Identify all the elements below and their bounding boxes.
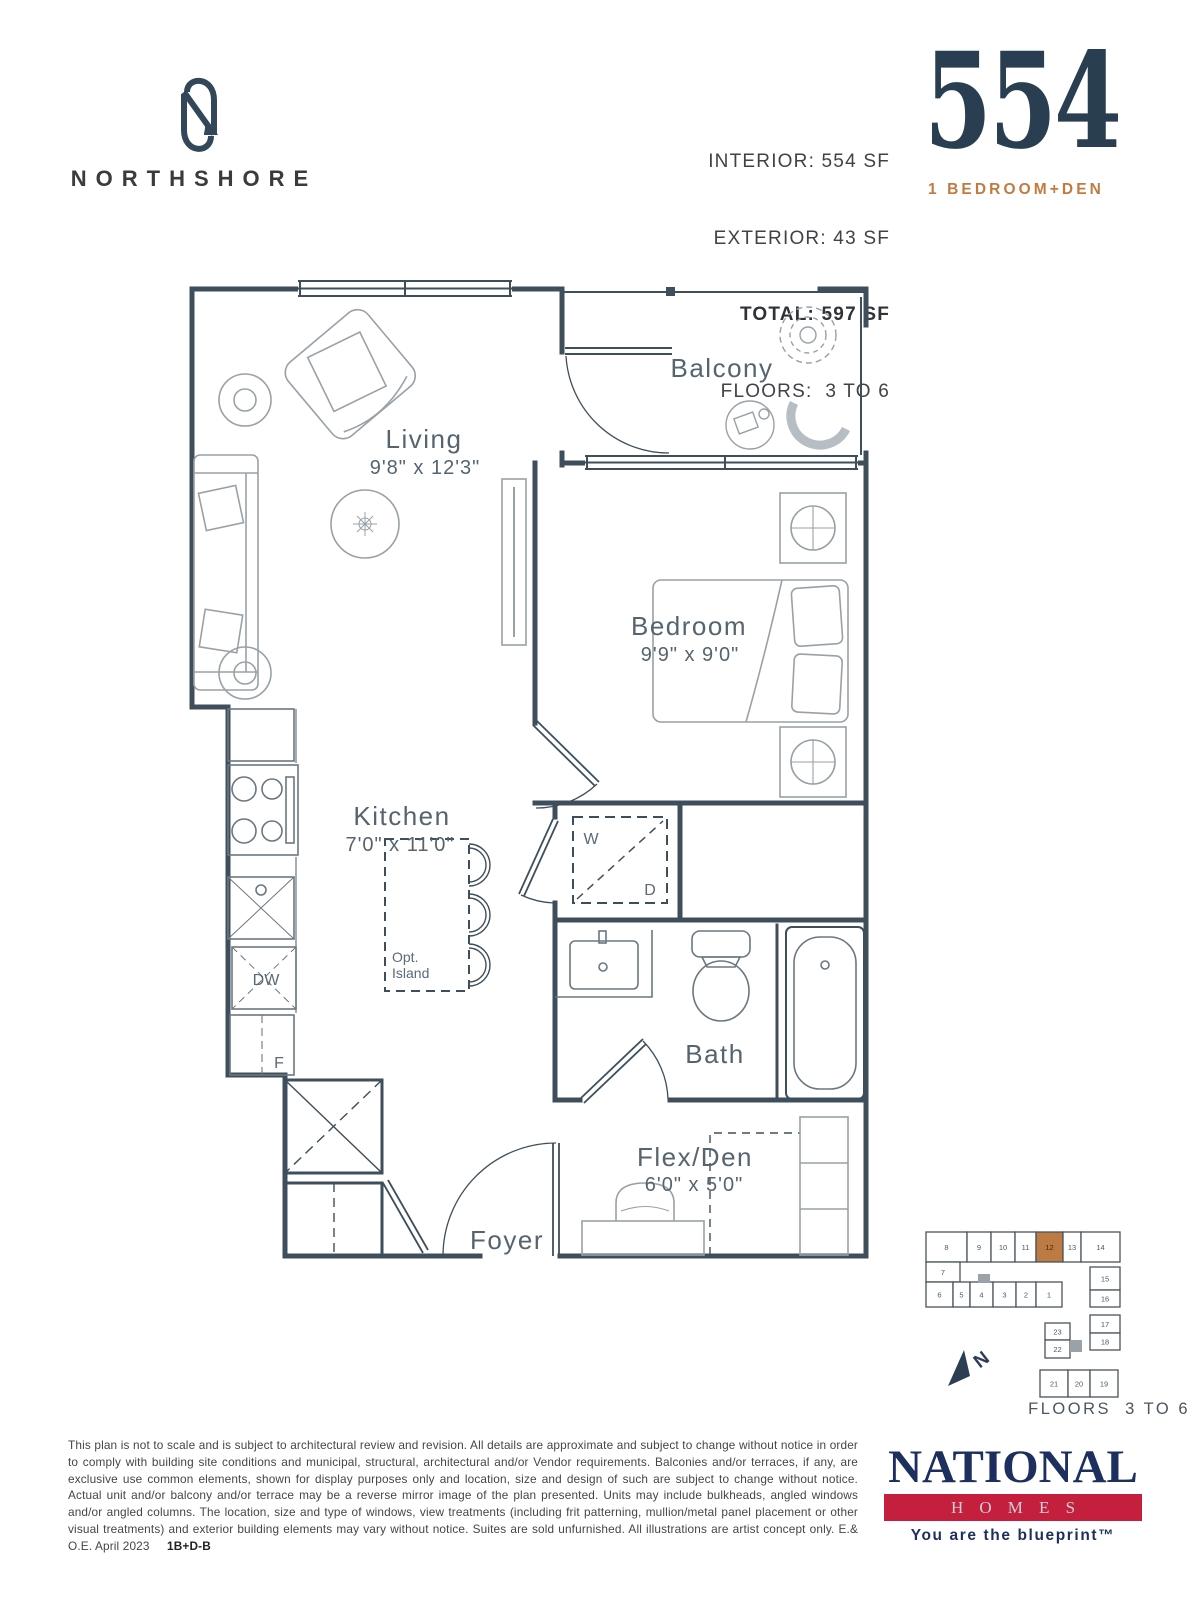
living-furniture [194,304,526,699]
stat-interior: INTERIOR: 554 SF [540,149,890,175]
keyplan-elevator [1070,1340,1082,1352]
keyplan-unit-label: 18 [1101,1338,1109,1347]
keyplan-unit-label: 7 [941,1268,945,1277]
kitchen-appliances [228,709,298,1075]
pillow [792,654,843,714]
brand-wordmark: NORTHSHORE [56,166,332,192]
island-label-1: Opt. [392,949,418,965]
keyplan-unit-label: 16 [1101,1295,1109,1304]
island-label-2: Island [392,965,429,981]
dryer-label: D [644,882,656,899]
floorplan-sheet: NORTHSHORE INTERIOR: 554 SF EXTERIOR: 43… [0,0,1200,1613]
keyplan-unit-label: 17 [1101,1320,1109,1329]
bath-fixtures [555,927,864,1099]
keyplan-unit-label: 21 [1050,1380,1058,1389]
closets [285,817,667,1256]
foyer-label: Foyer [470,1225,544,1255]
unit-type-label: 1 BEDROOM+DEN [928,181,1128,199]
keyplan-floors-note: FLOORS 3 TO 6 [890,1400,1190,1419]
keyplan-unit-label: 22 [1053,1345,1061,1354]
kitchen-dims: 7'0" x 11'0" [345,834,454,856]
bathtub [786,927,864,1099]
keyplan-unit-label: 13 [1068,1243,1076,1252]
national-logo-name: NATIONAL [884,1444,1142,1492]
keyplan-unit-label: 19 [1100,1380,1108,1389]
fridge-label: F [274,1055,284,1072]
northshore-monogram-icon [166,64,232,162]
keyplan-unit-label: 2 [1024,1291,1028,1300]
bath-label: Bath [685,1039,745,1069]
dishwasher-label: DW [253,972,281,989]
keyplan-unit-label: 20 [1075,1380,1083,1389]
living-label: Living [386,424,463,454]
balcony-label: Balcony [671,353,774,383]
keyplan-unit-label: 3 [1002,1291,1006,1300]
national-homes-logo: NATIONAL HOMES You are the blueprint™ [884,1444,1142,1545]
keyplan-unit-label: 5 [959,1291,963,1300]
disclaimer-text: This plan is not to scale and is subject… [68,1438,858,1553]
keyplan-unit-label: 10 [999,1243,1007,1252]
keyplan-unit-label: 14 [1096,1243,1104,1252]
flexden-dims: 6'0" x 5'0" [645,1174,743,1196]
walls [192,289,866,1256]
floorplan-drawing: Living 9'8" x 12'3" Balcony Bedroom 9'9"… [180,265,875,1265]
plan-code: 1B+D-B [167,1539,211,1553]
bistro-table [726,401,774,449]
keyplan-unit-label: 12 [1045,1243,1053,1252]
balcony-chair [791,403,846,445]
keyplan-unit-label: 15 [1101,1275,1109,1284]
side-table [219,647,271,699]
keyplan-unit-label: 11 [1022,1243,1030,1252]
north-label: N [970,1348,994,1373]
pillow [791,585,843,646]
keyplan-unit-label: 9 [977,1243,981,1252]
kitchen-label: Kitchen [353,801,450,831]
keyplan-unit-label: 6 [937,1291,941,1300]
shelving [800,1117,848,1255]
stat-exterior: EXTERIOR: 43 SF [540,226,890,252]
keyplan-unit-label: 4 [979,1291,983,1300]
keyplan: 8910111213147654321151617182322212019 N [890,1190,1200,1420]
toilet [692,931,750,957]
keyplan-unit-label: 23 [1053,1328,1061,1337]
plant [780,307,836,363]
national-logo-tagline: You are the blueprint™ [884,1527,1142,1545]
north-arrow-icon: N [948,1348,994,1386]
keyplan-unit-label: 8 [944,1243,948,1252]
keyplan-unit-label: 1 [1047,1291,1051,1300]
bedroom-label: Bedroom [631,611,747,641]
national-logo-bar: HOMES [884,1494,1142,1521]
unit-number: 554 [924,36,1116,168]
desk [582,1221,704,1255]
windows [298,278,858,472]
living-dims: 9'8" x 12'3" [370,457,481,479]
side-table [219,374,271,426]
keyplan-elevator [978,1274,990,1283]
national-logo-sub: HOMES [935,1499,1091,1516]
washer-label: W [583,831,599,848]
flexden-label: Flex/Den [637,1142,753,1172]
bath-sink [570,941,638,989]
bedroom-dims: 9'9" x 9'0" [641,644,739,666]
legal-disclaimer: This plan is not to scale and is subject… [68,1437,858,1554]
